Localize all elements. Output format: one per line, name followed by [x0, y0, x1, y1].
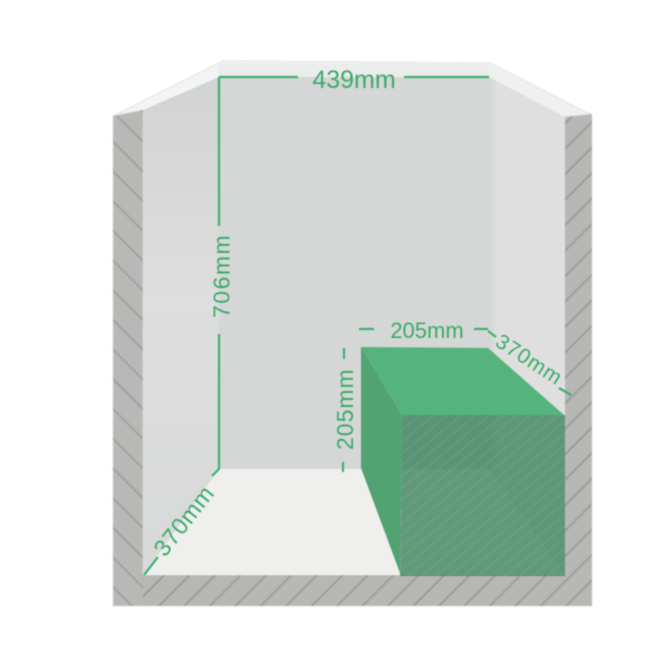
svg-text:706mm: 706mm [209, 234, 235, 318]
svg-text:205mm: 205mm [390, 318, 463, 343]
svg-text:439mm: 439mm [312, 66, 395, 94]
svg-text:205mm: 205mm [332, 368, 358, 450]
